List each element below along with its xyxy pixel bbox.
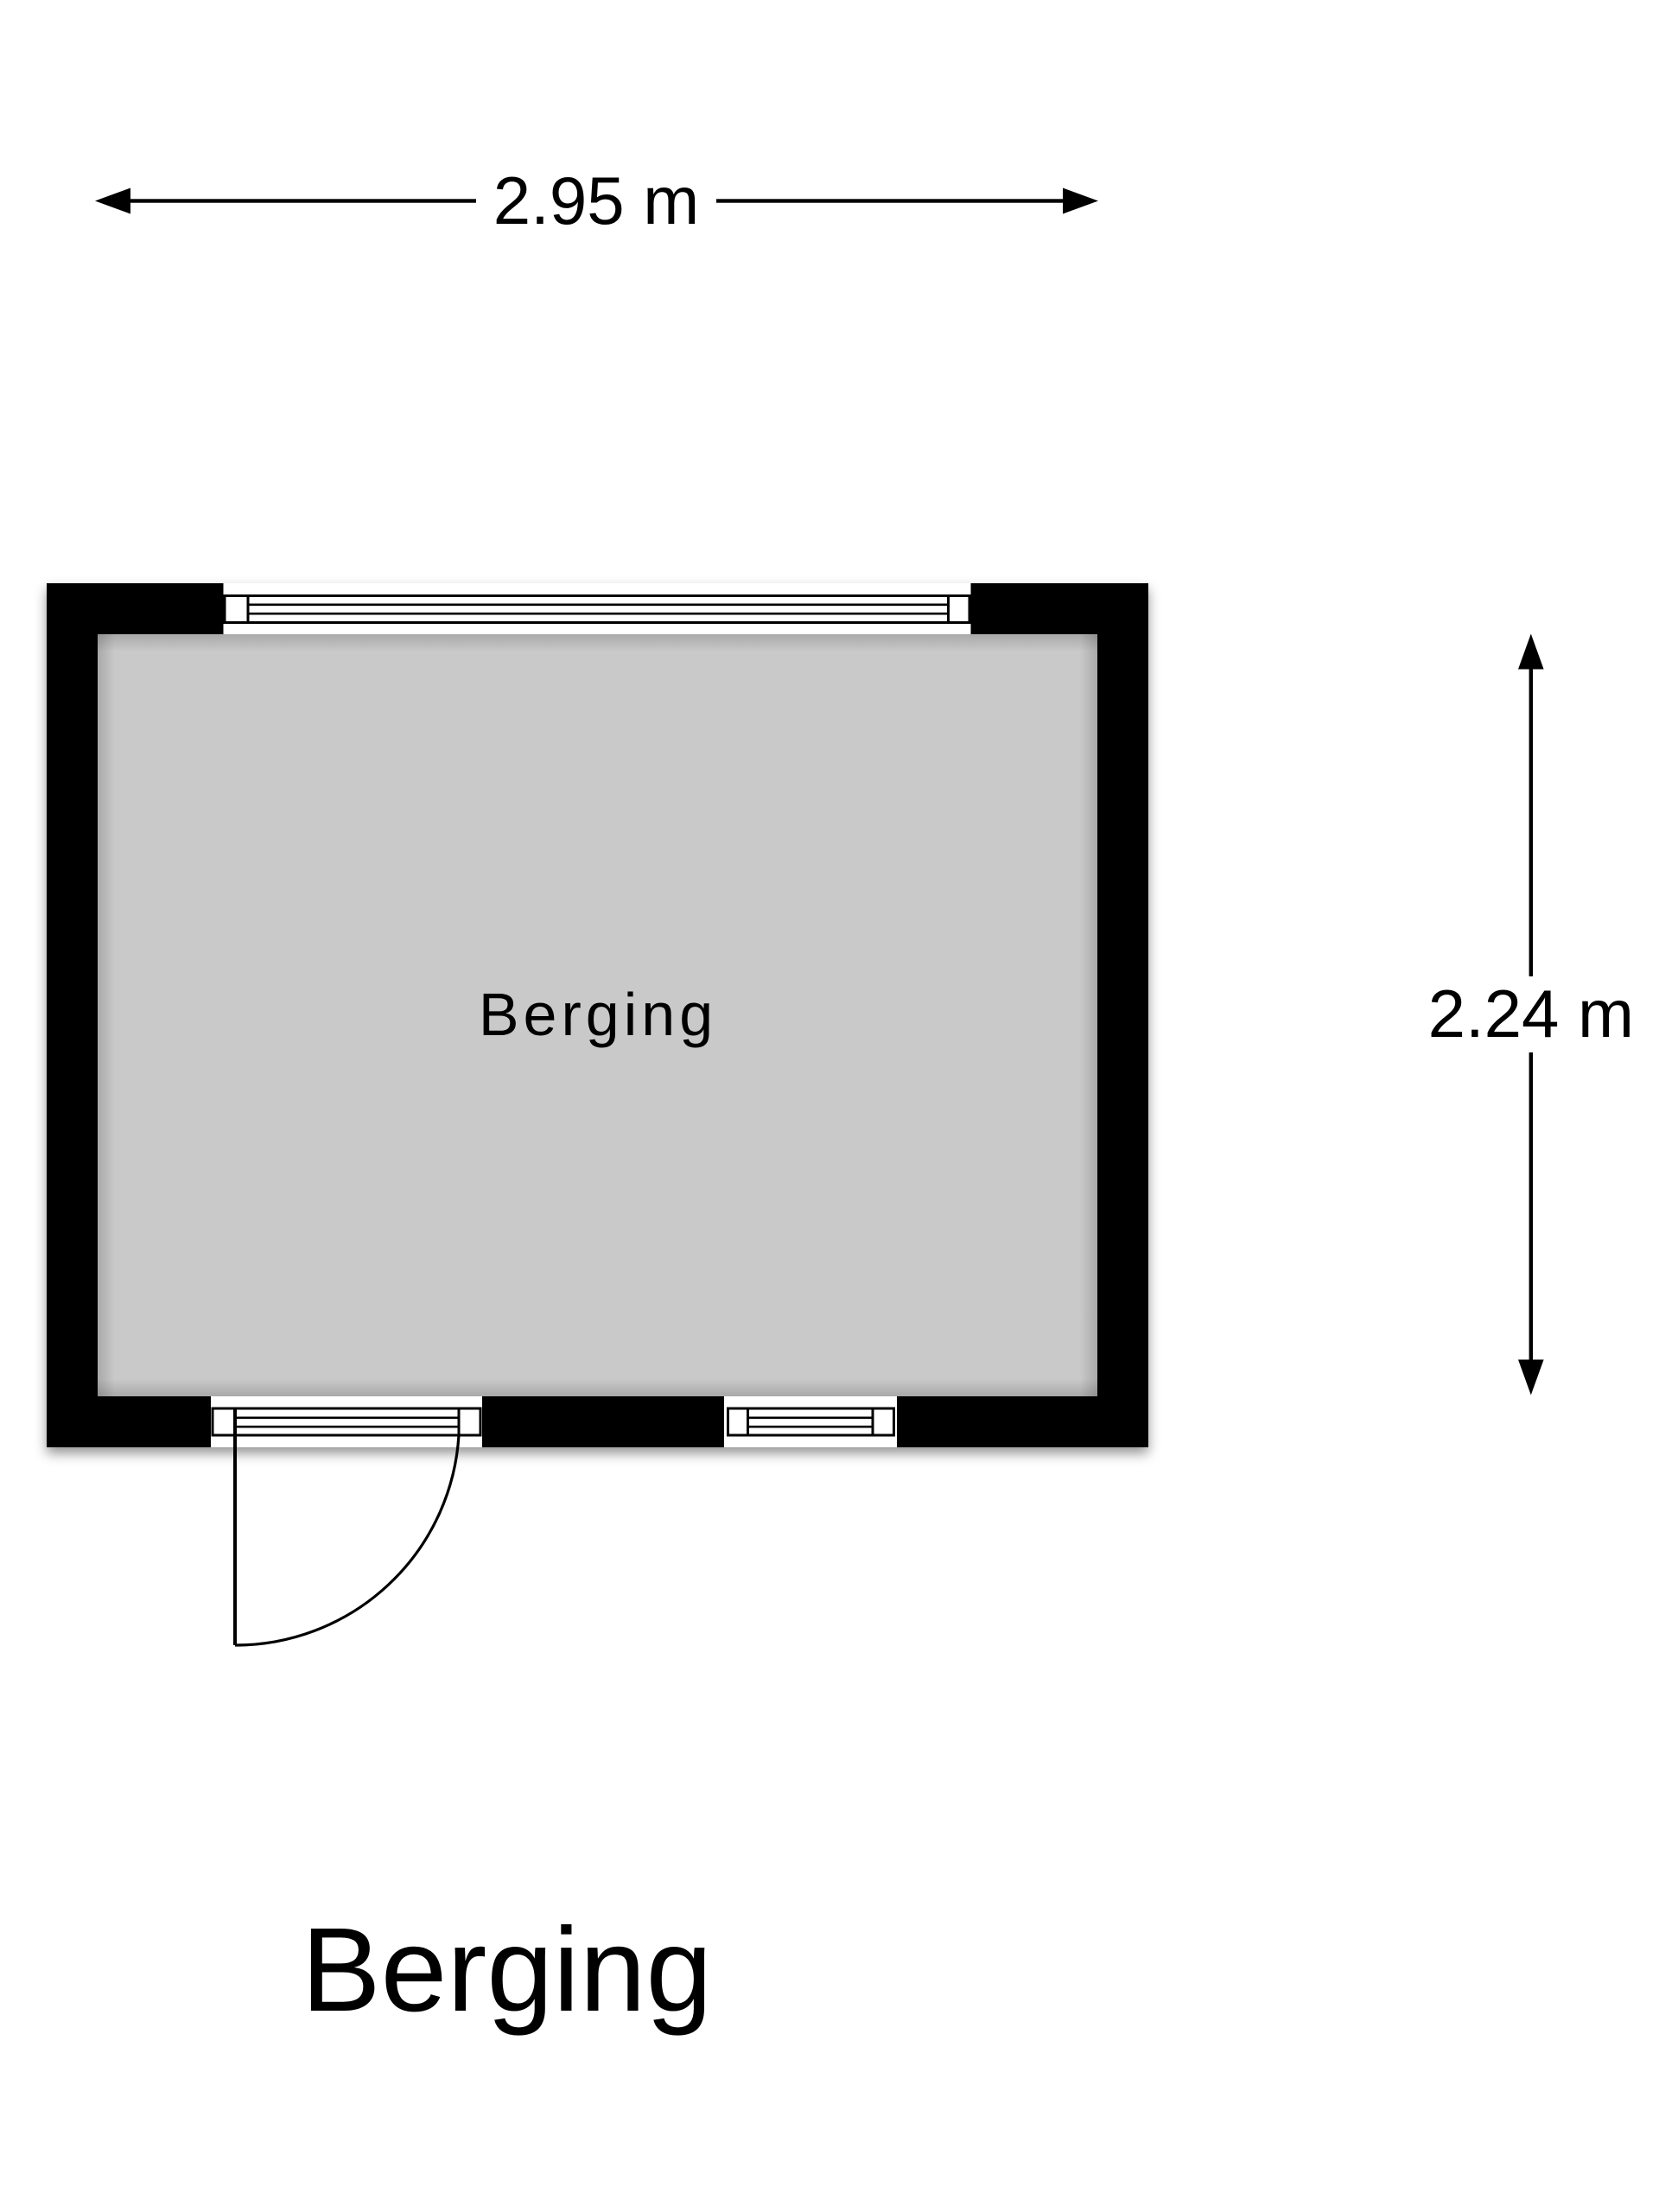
svg-text:2.24 m: 2.24 m xyxy=(1428,976,1634,1052)
svg-text:2.95 m: 2.95 m xyxy=(493,162,699,238)
svg-text:Berging: Berging xyxy=(302,1904,713,2037)
svg-text:Berging: Berging xyxy=(479,981,717,1048)
